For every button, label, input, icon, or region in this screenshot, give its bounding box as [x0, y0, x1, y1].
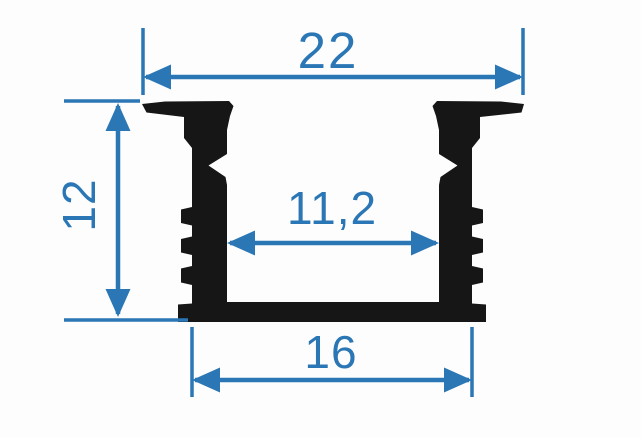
arrowhead-12-down	[106, 289, 131, 317]
dim-label-inner-width: 11,2	[287, 182, 377, 234]
arrowhead-11-2-right	[411, 231, 439, 256]
arrowhead-12-up	[106, 103, 131, 131]
dim-label-overall-width: 22	[298, 22, 359, 79]
dim-label-overall-height: 12	[53, 178, 105, 231]
arrowhead-16-left	[192, 368, 220, 393]
arrowhead-16-right	[444, 368, 472, 393]
dim-label-base-width: 16	[304, 326, 357, 378]
technical-drawing-canvas: 22 12 11,2 16	[0, 0, 641, 438]
profile-drawing: 22 12 11,2 16	[0, 0, 641, 438]
arrowhead-22-right	[495, 65, 523, 90]
arrowhead-22-left	[143, 65, 171, 90]
arrowhead-11-2-left	[227, 231, 255, 256]
